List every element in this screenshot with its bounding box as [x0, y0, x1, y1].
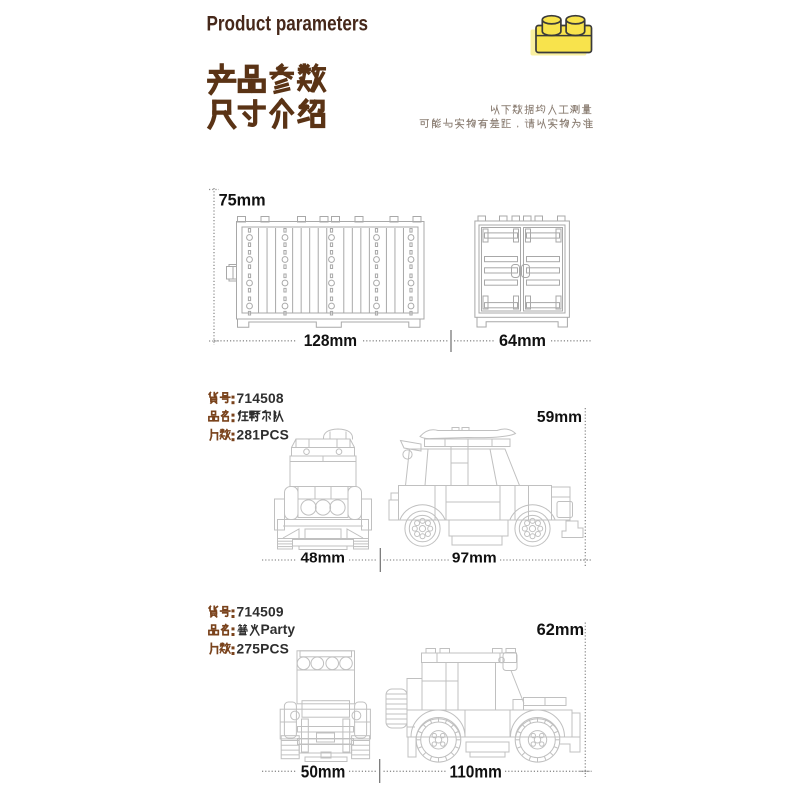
svg-text:275PCS: 275PCS	[237, 641, 290, 656]
svg-text:75mm: 75mm	[219, 190, 266, 209]
svg-text:64mm: 64mm	[499, 332, 546, 350]
svg-text:281PCS: 281PCS	[237, 428, 290, 443]
svg-text:Product parameters: Product parameters	[207, 12, 369, 36]
svg-text:48mm: 48mm	[301, 550, 346, 567]
svg-text:110mm: 110mm	[450, 761, 502, 781]
svg-text:62mm: 62mm	[537, 621, 585, 639]
svg-text:59mm: 59mm	[537, 409, 582, 426]
svg-text:50mm: 50mm	[301, 761, 346, 781]
svg-text:714508: 714508	[237, 391, 284, 406]
svg-text:Party: Party	[261, 622, 296, 637]
svg-text:714509: 714509	[237, 605, 284, 620]
svg-text:97mm: 97mm	[452, 550, 497, 567]
svg-text:128mm: 128mm	[304, 332, 357, 350]
